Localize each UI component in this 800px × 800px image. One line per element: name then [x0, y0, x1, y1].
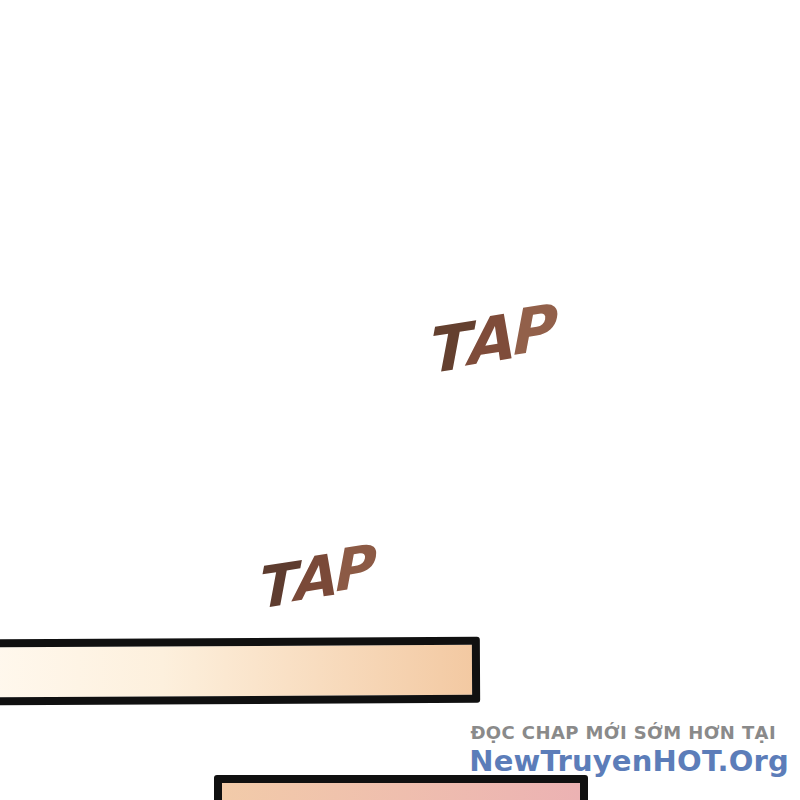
sfx-letter: P — [506, 297, 551, 366]
comic-page: { "page": { "background_color": "#ffffff… — [0, 0, 800, 800]
sfx-letter: P — [329, 538, 370, 601]
panel-pink-bar — [214, 775, 588, 800]
watermark: ĐỌC CHAP MỚI SỚM HƠN TẠI NewTruyenHOT.Or… — [469, 722, 789, 776]
sfx-letter: T — [253, 550, 292, 622]
watermark-tagline: ĐỌC CHAP MỚI SỚM HƠN TẠI — [469, 722, 789, 744]
sfx-tap-2: TAP — [253, 543, 370, 618]
sfx-letter: A — [289, 547, 333, 611]
watermark-site-link: NewTruyenHOT.Org — [469, 746, 789, 776]
sfx-letter: A — [462, 307, 510, 376]
sfx-letter: T — [423, 310, 466, 389]
sfx-tap-1: TAP — [423, 302, 551, 384]
panel-cream-bar — [0, 637, 480, 706]
